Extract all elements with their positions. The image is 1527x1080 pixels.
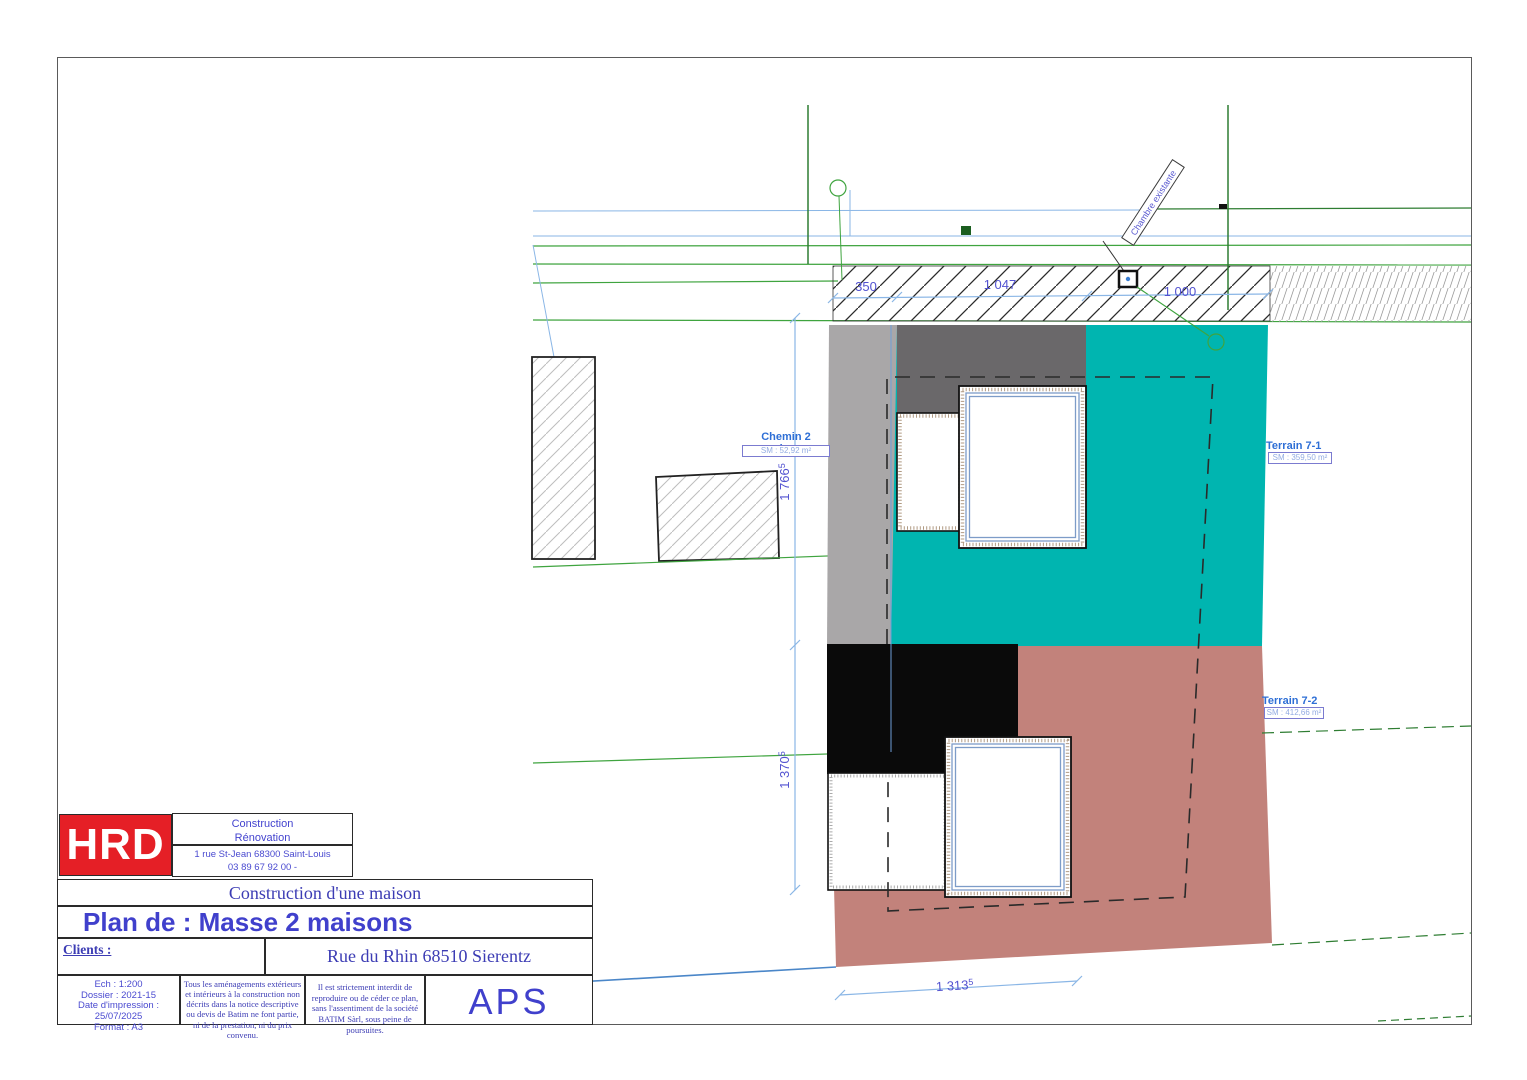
terrain-7-2-area-box: SM : 412,66 m²	[1264, 707, 1324, 719]
site-address-cell: Rue du Rhin 68510 Sierentz	[265, 938, 593, 975]
dim-1000: 1 000	[1164, 284, 1197, 299]
terrain-7-1-area-box: SM : 359,50 m²	[1268, 452, 1332, 464]
terrain-7-1-label: Terrain 7-1	[1266, 440, 1346, 452]
company-address-cell: 1 rue St-Jean 68300 Saint-Louis 03 89 67…	[172, 845, 353, 877]
boundary-lines-right	[1262, 726, 1471, 1021]
project-title-cell: Construction d'une maison	[57, 879, 593, 906]
dimension-left-upper: 1 7665	[777, 313, 800, 650]
dim-1766: 1 7665	[777, 463, 792, 501]
road-hatch-band	[833, 266, 1270, 321]
road-hatch-band-fine	[1270, 266, 1471, 322]
pole-line-left	[808, 105, 850, 280]
dim-1370: 1 3705	[777, 751, 792, 789]
existing-building-center	[656, 471, 779, 561]
phase-aps-cell: APS	[425, 975, 593, 1025]
parcel-line-blue-left	[533, 245, 554, 357]
disclaimer-1-cell: Tous les aménagements extérieurs et inté…	[180, 975, 305, 1025]
company-name-cell: Construction Rénovation	[172, 813, 353, 845]
dim-1047: 1 047	[984, 277, 1017, 292]
dim-1313: 1 3135	[936, 977, 974, 994]
utility-box-icon	[961, 226, 971, 235]
dimension-bottom: 1 3135	[835, 976, 1082, 1000]
tree-circle-icon	[830, 180, 846, 196]
house-2-footprint	[945, 737, 1071, 897]
site-plan-sheet: 350 1 047 1 000 1 7665 1 3705 1 3135	[0, 0, 1527, 1080]
clients-label-cell: Clients :	[57, 938, 265, 975]
terrain-7-2-label: Terrain 7-2	[1262, 695, 1342, 707]
disclaimer-2-cell: Il est strictement interdit de reproduir…	[305, 975, 425, 1025]
dimension-left-lower: 1 3705	[777, 645, 800, 895]
sheet-meta-cell: Ech : 1:200 Dossier : 2021-15 Date d'imp…	[57, 975, 180, 1025]
plan-title-cell: Plan de : Masse 2 maisons	[57, 906, 593, 938]
logo-text: HRD	[66, 820, 164, 870]
dim-350: 350	[855, 279, 877, 294]
house-1-annex	[897, 413, 963, 531]
existing-building-left	[532, 357, 595, 559]
chemin-area-box: SM : 52,92 m²	[742, 445, 830, 457]
company-logo: HRD	[59, 814, 172, 876]
house-1-footprint	[959, 386, 1086, 548]
pole-marker-icon	[1219, 204, 1227, 209]
